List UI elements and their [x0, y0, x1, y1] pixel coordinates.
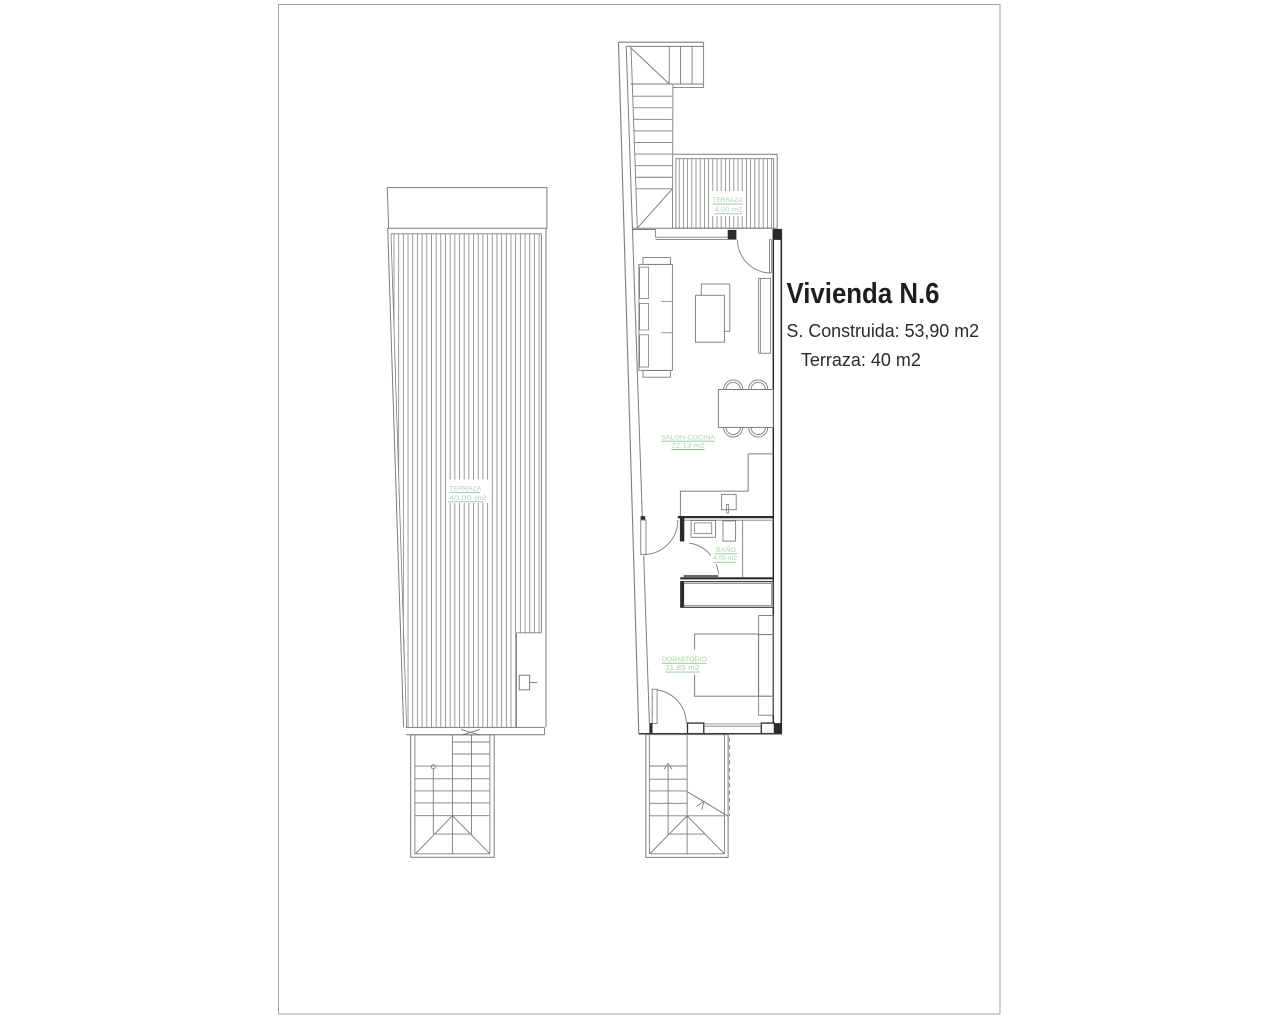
svg-text:4.05 m2: 4.05 m2 — [713, 555, 738, 562]
svg-text:TERRAZA: TERRAZA — [713, 197, 744, 204]
svg-text:S. Construida: 53,90 m2: S. Construida: 53,90 m2 — [787, 321, 980, 341]
svg-text:4.00 m2: 4.00 m2 — [715, 207, 744, 214]
svg-text:TERRAZA: TERRAZA — [450, 485, 482, 492]
svg-text:11.85 m2: 11.85 m2 — [666, 665, 700, 672]
svg-text:BAÑO: BAÑO — [716, 547, 736, 554]
svg-text:Terraza: 40 m2: Terraza: 40 m2 — [801, 350, 921, 370]
svg-text:SALON-COCINA: SALON-COCINA — [661, 434, 715, 441]
svg-text:DORMITORIO: DORMITORIO — [662, 656, 708, 663]
svg-text:Vivienda N.6: Vivienda N.6 — [787, 278, 940, 310]
svg-text:40.00 m2: 40.00 m2 — [449, 495, 487, 502]
svg-text:22.13 m2: 22.13 m2 — [671, 443, 705, 450]
